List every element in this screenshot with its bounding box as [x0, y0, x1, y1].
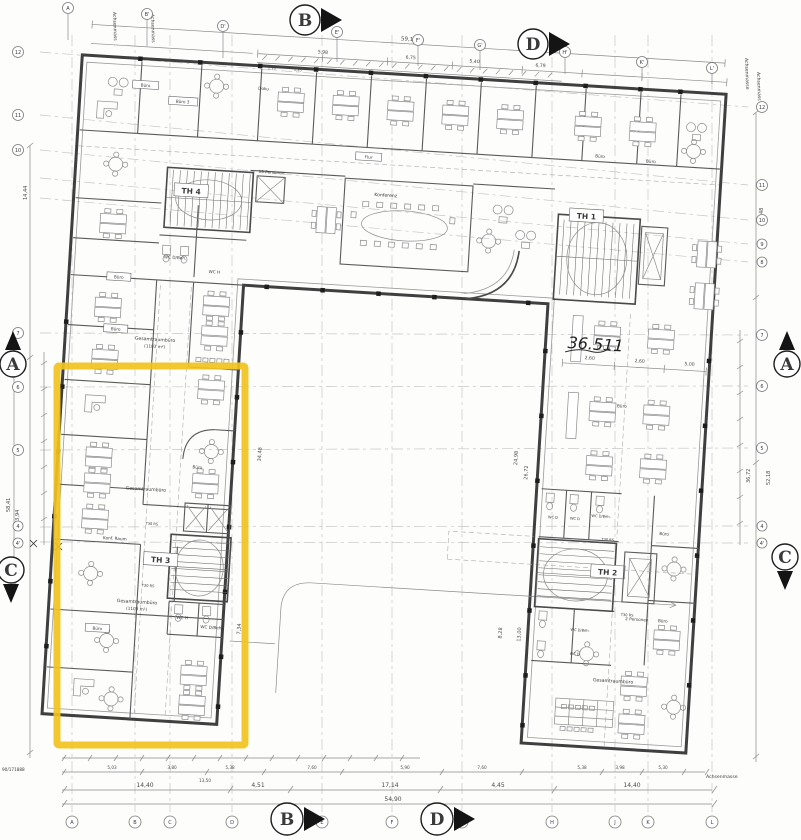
dimension-text: 5,00 — [684, 361, 695, 368]
stairwell-label: TH 4 — [181, 186, 201, 196]
dimension-text: 5,30 — [658, 765, 668, 770]
grid-bubble: 5 — [13, 445, 24, 456]
dimension-text: 13,50 — [199, 778, 211, 783]
grid-bubble: D — [226, 816, 238, 828]
floor-plan-page: 59,19 5,98 6,75 5,40 6,79 1,35 1,35 — [0, 0, 801, 840]
grid-bubble: 10 — [757, 215, 768, 226]
svg-text:5: 5 — [16, 448, 19, 454]
fire-door-label: T30 RS — [141, 583, 156, 588]
building-plan: 59,19 5,98 6,75 5,40 6,79 1,35 1,35 — [40, 17, 733, 754]
grid-bubble: 5 — [757, 443, 768, 454]
svg-text:6: 6 — [16, 385, 19, 391]
grid-bubble: A — [66, 816, 78, 828]
svg-text:7: 7 — [760, 333, 763, 339]
svg-text:B: B — [280, 810, 294, 830]
svg-text:11: 11 — [759, 183, 765, 189]
room-label: Büro — [141, 83, 151, 89]
grid-bubble: K — [642, 816, 654, 828]
svg-text:E': E' — [335, 30, 340, 36]
dimension-text: 6,75 — [405, 55, 416, 62]
svg-text:A: A — [5, 355, 20, 375]
stairwell-label: TH 3 — [151, 555, 171, 565]
room-label: Konferenz — [374, 192, 398, 199]
dimension-text: 5,03 — [107, 765, 117, 770]
grid-bubble: K' — [637, 57, 648, 68]
room-label: Büro — [114, 274, 124, 280]
room-label: WC D/Beh. — [200, 624, 223, 630]
grid-bubble: 11 — [757, 180, 768, 191]
grid-bubble: H — [546, 816, 558, 828]
dimension-text: 36,72 — [746, 469, 752, 483]
grid-bubble: G' — [475, 40, 486, 51]
svg-text:A: A — [779, 355, 794, 375]
svg-text:G': G' — [477, 43, 482, 49]
dimension-text: 7,60 — [307, 765, 317, 770]
section-marker-c-left: C — [0, 557, 24, 603]
svg-text:B: B — [133, 820, 137, 826]
svg-text:K': K' — [640, 60, 645, 66]
svg-text:L: L — [711, 820, 714, 826]
svg-text:H: H — [550, 820, 554, 826]
fire-door-label: T30 RS — [620, 613, 635, 618]
svg-text:10: 10 — [759, 218, 765, 224]
room-label: Büro — [658, 618, 668, 624]
grid-bubble: 7 — [757, 330, 768, 341]
annotation-text: Achsenmasse — [743, 58, 750, 90]
dimension-text: 52,18 — [766, 471, 772, 485]
room-label: Gesamtraumbüro — [135, 336, 176, 344]
dimension-text: 2,60 — [584, 355, 595, 362]
furniture — [60, 67, 730, 750]
grid-bubble: C — [164, 816, 176, 828]
section-marker-a-left: A — [0, 331, 26, 377]
svg-text:A: A — [70, 820, 74, 826]
handwritten-annotation: 36.511 — [565, 333, 624, 356]
grid-bubble: A — [63, 3, 74, 14]
room-label: Büro — [595, 153, 605, 159]
dimension-text: 8,28 — [497, 627, 504, 638]
svg-text:4: 4 — [760, 524, 763, 530]
room-label: WC D — [570, 652, 580, 657]
room-label: Flur — [364, 154, 373, 159]
svg-text:J: J — [613, 820, 615, 826]
grid-bubble: F' — [413, 35, 424, 46]
dimension-text: 4,45 — [491, 782, 505, 789]
svg-text:L': L' — [710, 66, 714, 72]
dimension-text: 24,98 — [513, 451, 520, 466]
svg-text:B': B' — [145, 12, 150, 18]
curved-facade-inner — [463, 247, 514, 297]
svg-text:D': D' — [220, 24, 225, 30]
section-marker-a-right: A — [774, 331, 800, 377]
svg-text:4': 4' — [16, 541, 21, 547]
grid-bubble: 12 — [13, 47, 24, 58]
grid-bubble: 11 — [13, 110, 24, 121]
room-label: Büro 3 — [176, 99, 190, 105]
dimension-text: 5,38 — [577, 765, 587, 770]
svg-text:B: B — [298, 11, 312, 31]
room-label: Büro — [192, 464, 202, 470]
svg-text:C: C — [4, 561, 18, 581]
stairwell-th2: TH 2 2 Personen T30 RS T30 RS — [534, 534, 658, 623]
room-area: (1103 m²) — [144, 343, 166, 349]
svg-text:D: D — [230, 820, 234, 826]
svg-text:6: 6 — [760, 384, 763, 390]
grid-bubble: 10 — [13, 145, 24, 156]
interior-dimensions: 2,60 2,60 5,00 — [562, 354, 707, 376]
svg-text:D: D — [526, 35, 541, 55]
section-marker-b-bottom: B — [271, 803, 325, 835]
fire-door-label: T30 RS — [600, 537, 615, 542]
floor-plan-svg: 59,19 5,98 6,75 5,40 6,79 1,35 1,35 — [0, 0, 801, 840]
room-label: Konf. Raum — [103, 535, 127, 541]
grid-bubble: L' — [707, 63, 718, 74]
svg-text:A: A — [66, 6, 70, 12]
dimension-text: 5,40 — [469, 59, 480, 66]
room-label: Büro — [659, 531, 669, 537]
room-area: (1103 m²) — [126, 606, 148, 612]
dimension-text: 4,51 — [251, 782, 265, 789]
grid-bubble: 4 — [757, 521, 767, 531]
dimension-text: 6,79 — [535, 63, 546, 70]
grid-bubble: B — [129, 816, 141, 828]
dimension-text: 26,72 — [523, 465, 530, 480]
svg-text:F': F' — [416, 38, 420, 44]
svg-text:11: 11 — [15, 113, 21, 119]
room-label: WC D — [570, 517, 580, 522]
grid-bubbles-top: A B' D' E' F' G' H' K' L' — [63, 3, 718, 85]
stairwell-label: TH 2 — [598, 567, 618, 577]
dimension-text: 34,48 — [257, 447, 264, 462]
svg-text:8: 8 — [760, 260, 763, 266]
elevator-label: 13 Personen — [258, 169, 285, 176]
grid-bubble: 4' — [757, 538, 767, 548]
section-marker-d-bottom: D — [421, 803, 475, 835]
dimension-text: 3,80 — [167, 765, 177, 770]
room-label: Büro — [646, 159, 656, 165]
svg-text:5: 5 — [760, 446, 763, 452]
grid-bubble: 4 — [13, 521, 23, 531]
dimension-text: 17,14 — [381, 782, 398, 789]
svg-text:7: 7 — [16, 331, 19, 337]
grid-bubble: B' — [142, 9, 153, 20]
room-label: WC H — [176, 615, 188, 621]
room-label: Büro — [617, 403, 627, 409]
grid-bubble: 12 — [757, 102, 768, 113]
dimension-text: 5,38 — [225, 765, 235, 770]
annotation-text: Achsenmass — [111, 12, 118, 42]
dimension-text: 14,40 — [623, 782, 640, 789]
svg-text:4: 4 — [16, 524, 19, 530]
section-marker-c-right: C — [772, 544, 798, 590]
room-label: WC H — [208, 269, 220, 275]
room-label: WC D — [548, 515, 558, 520]
dimension-text: 14,40 — [136, 782, 153, 789]
grid-bubble: 6 — [757, 381, 768, 392]
dimension-text: 3,98 — [615, 765, 625, 770]
courtyard-dimensions: 34,48 24,98 26,72 8,28 13,00 7,34 — [236, 434, 534, 651]
dimension-text: 54,90 — [384, 796, 401, 803]
room-label: Büro — [92, 626, 102, 632]
dimension-text: 58,41 — [6, 498, 12, 512]
curved-facade — [466, 248, 519, 302]
room-label: WC D/Beh. — [591, 514, 610, 519]
grid-bubble: 9 — [757, 239, 767, 249]
svg-text:9: 9 — [760, 242, 763, 248]
stairwell-th1: TH 1 — [553, 207, 668, 306]
pillars — [41, 53, 728, 738]
dimension-text: 5,90 — [400, 765, 410, 770]
svg-text:F: F — [391, 820, 394, 826]
room-label: Doku — [258, 86, 269, 92]
grid-bubbles-bottom: A B C D E F G H J K L — [66, 816, 718, 828]
grid-bubble: 6 — [13, 382, 24, 393]
svg-text:12: 12 — [759, 105, 765, 111]
room-label: WC D/Beh. — [164, 254, 187, 260]
annotation-text: Achsenmass — [755, 72, 762, 102]
bottom-dimension-chain: 5,03 3,80 5,38 7,60 5,90 7,60 5,38 3,98 … — [62, 755, 717, 807]
room-label: Büro — [111, 326, 121, 332]
svg-text:D: D — [430, 810, 445, 830]
top-dimension-chain: 59,19 5,98 6,75 5,40 6,79 1,35 1,35 — [90, 17, 728, 98]
room-label: Gesamtraumbüro — [126, 485, 167, 493]
svg-text:C: C — [168, 820, 172, 826]
room-labels: Büro Büro 3 Doku Büro Büro Flur WC D/Beh… — [84, 77, 699, 687]
svg-text:10: 10 — [15, 148, 21, 154]
grid-bubble: L — [706, 816, 718, 828]
grid-bubble: E' — [332, 27, 343, 38]
right-dimension-chain: 14,48 36,72 52,18 — [737, 110, 772, 762]
grid-bubble: F — [386, 816, 398, 828]
annotation-text: Achsenmasse — [706, 774, 738, 780]
room-label: Gesamtraumbüro — [117, 598, 158, 606]
grid-bubble: 8 — [757, 257, 767, 267]
fire-door-label: T30 RS — [144, 522, 159, 527]
stairwell-label: TH 1 — [577, 211, 597, 221]
plan-number: 90/171888 — [2, 767, 25, 772]
conference-room: Konferenz — [340, 178, 473, 272]
svg-text:C: C — [778, 548, 792, 568]
grid-bubble: D' — [218, 21, 229, 32]
dimension-text: 5,98 — [318, 49, 329, 56]
dimension-text: 2,60 — [634, 358, 645, 365]
dimension-text: 13,00 — [516, 627, 523, 642]
svg-text:4': 4' — [760, 541, 765, 547]
dimension-text: 7,60 — [477, 765, 487, 770]
grid-bubble: 4' — [13, 538, 23, 548]
svg-text:12: 12 — [15, 50, 21, 56]
grid-bubble: J — [609, 816, 621, 828]
dimension-text: 14,44 — [23, 186, 29, 200]
svg-text:H': H' — [562, 50, 567, 56]
